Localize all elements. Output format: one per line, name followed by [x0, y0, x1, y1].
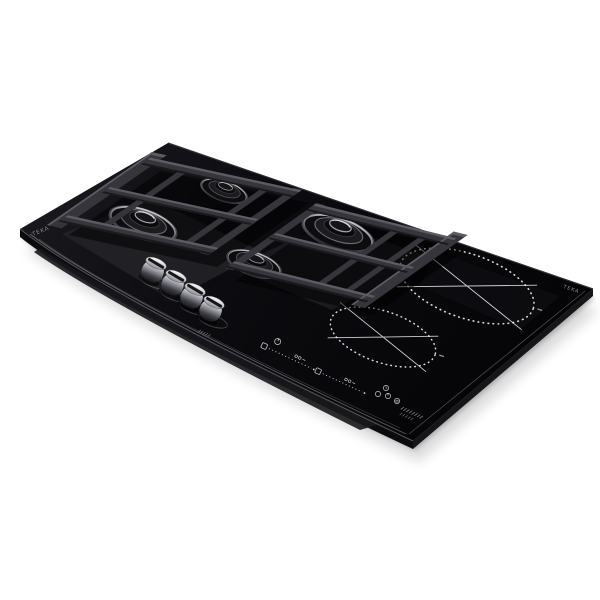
cooktop-illustration: TEKA TEKA	[0, 0, 600, 600]
product-photo: TEKA TEKA	[0, 0, 600, 600]
